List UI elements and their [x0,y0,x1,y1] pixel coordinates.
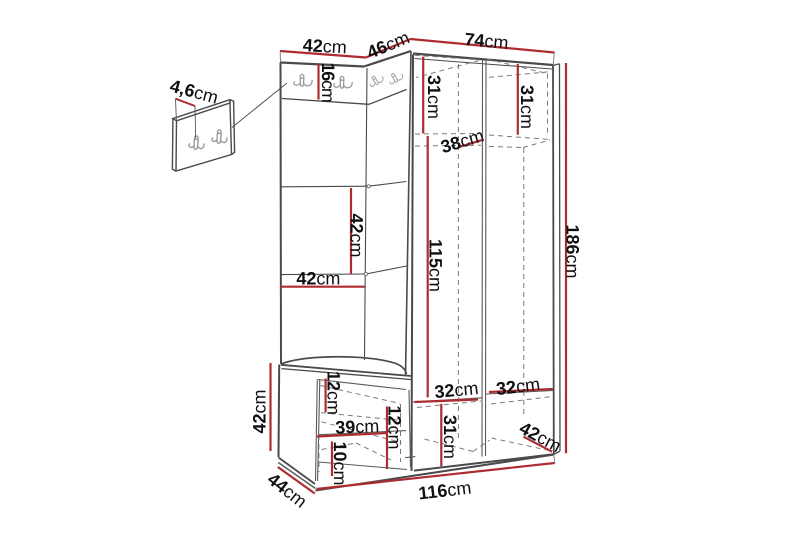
svg-text:74cm: 74cm [464,29,510,53]
svg-text:16cm: 16cm [318,63,338,102]
svg-text:31cm: 31cm [517,85,537,129]
svg-text:42cm: 42cm [296,269,340,289]
svg-text:42cm: 42cm [347,214,367,258]
svg-text:31cm: 31cm [440,415,460,459]
svg-text:12cm: 12cm [323,371,343,415]
svg-text:186cm: 186cm [563,225,583,279]
svg-text:42cm: 42cm [250,389,270,433]
svg-text:115cm: 115cm [426,239,446,292]
svg-text:32cm: 32cm [434,378,480,402]
svg-text:12cm: 12cm [384,406,404,450]
svg-text:31cm: 31cm [424,75,444,119]
svg-text:39cm: 39cm [335,416,380,438]
svg-text:10cm: 10cm [330,442,350,486]
svg-text:42cm: 42cm [302,35,347,57]
